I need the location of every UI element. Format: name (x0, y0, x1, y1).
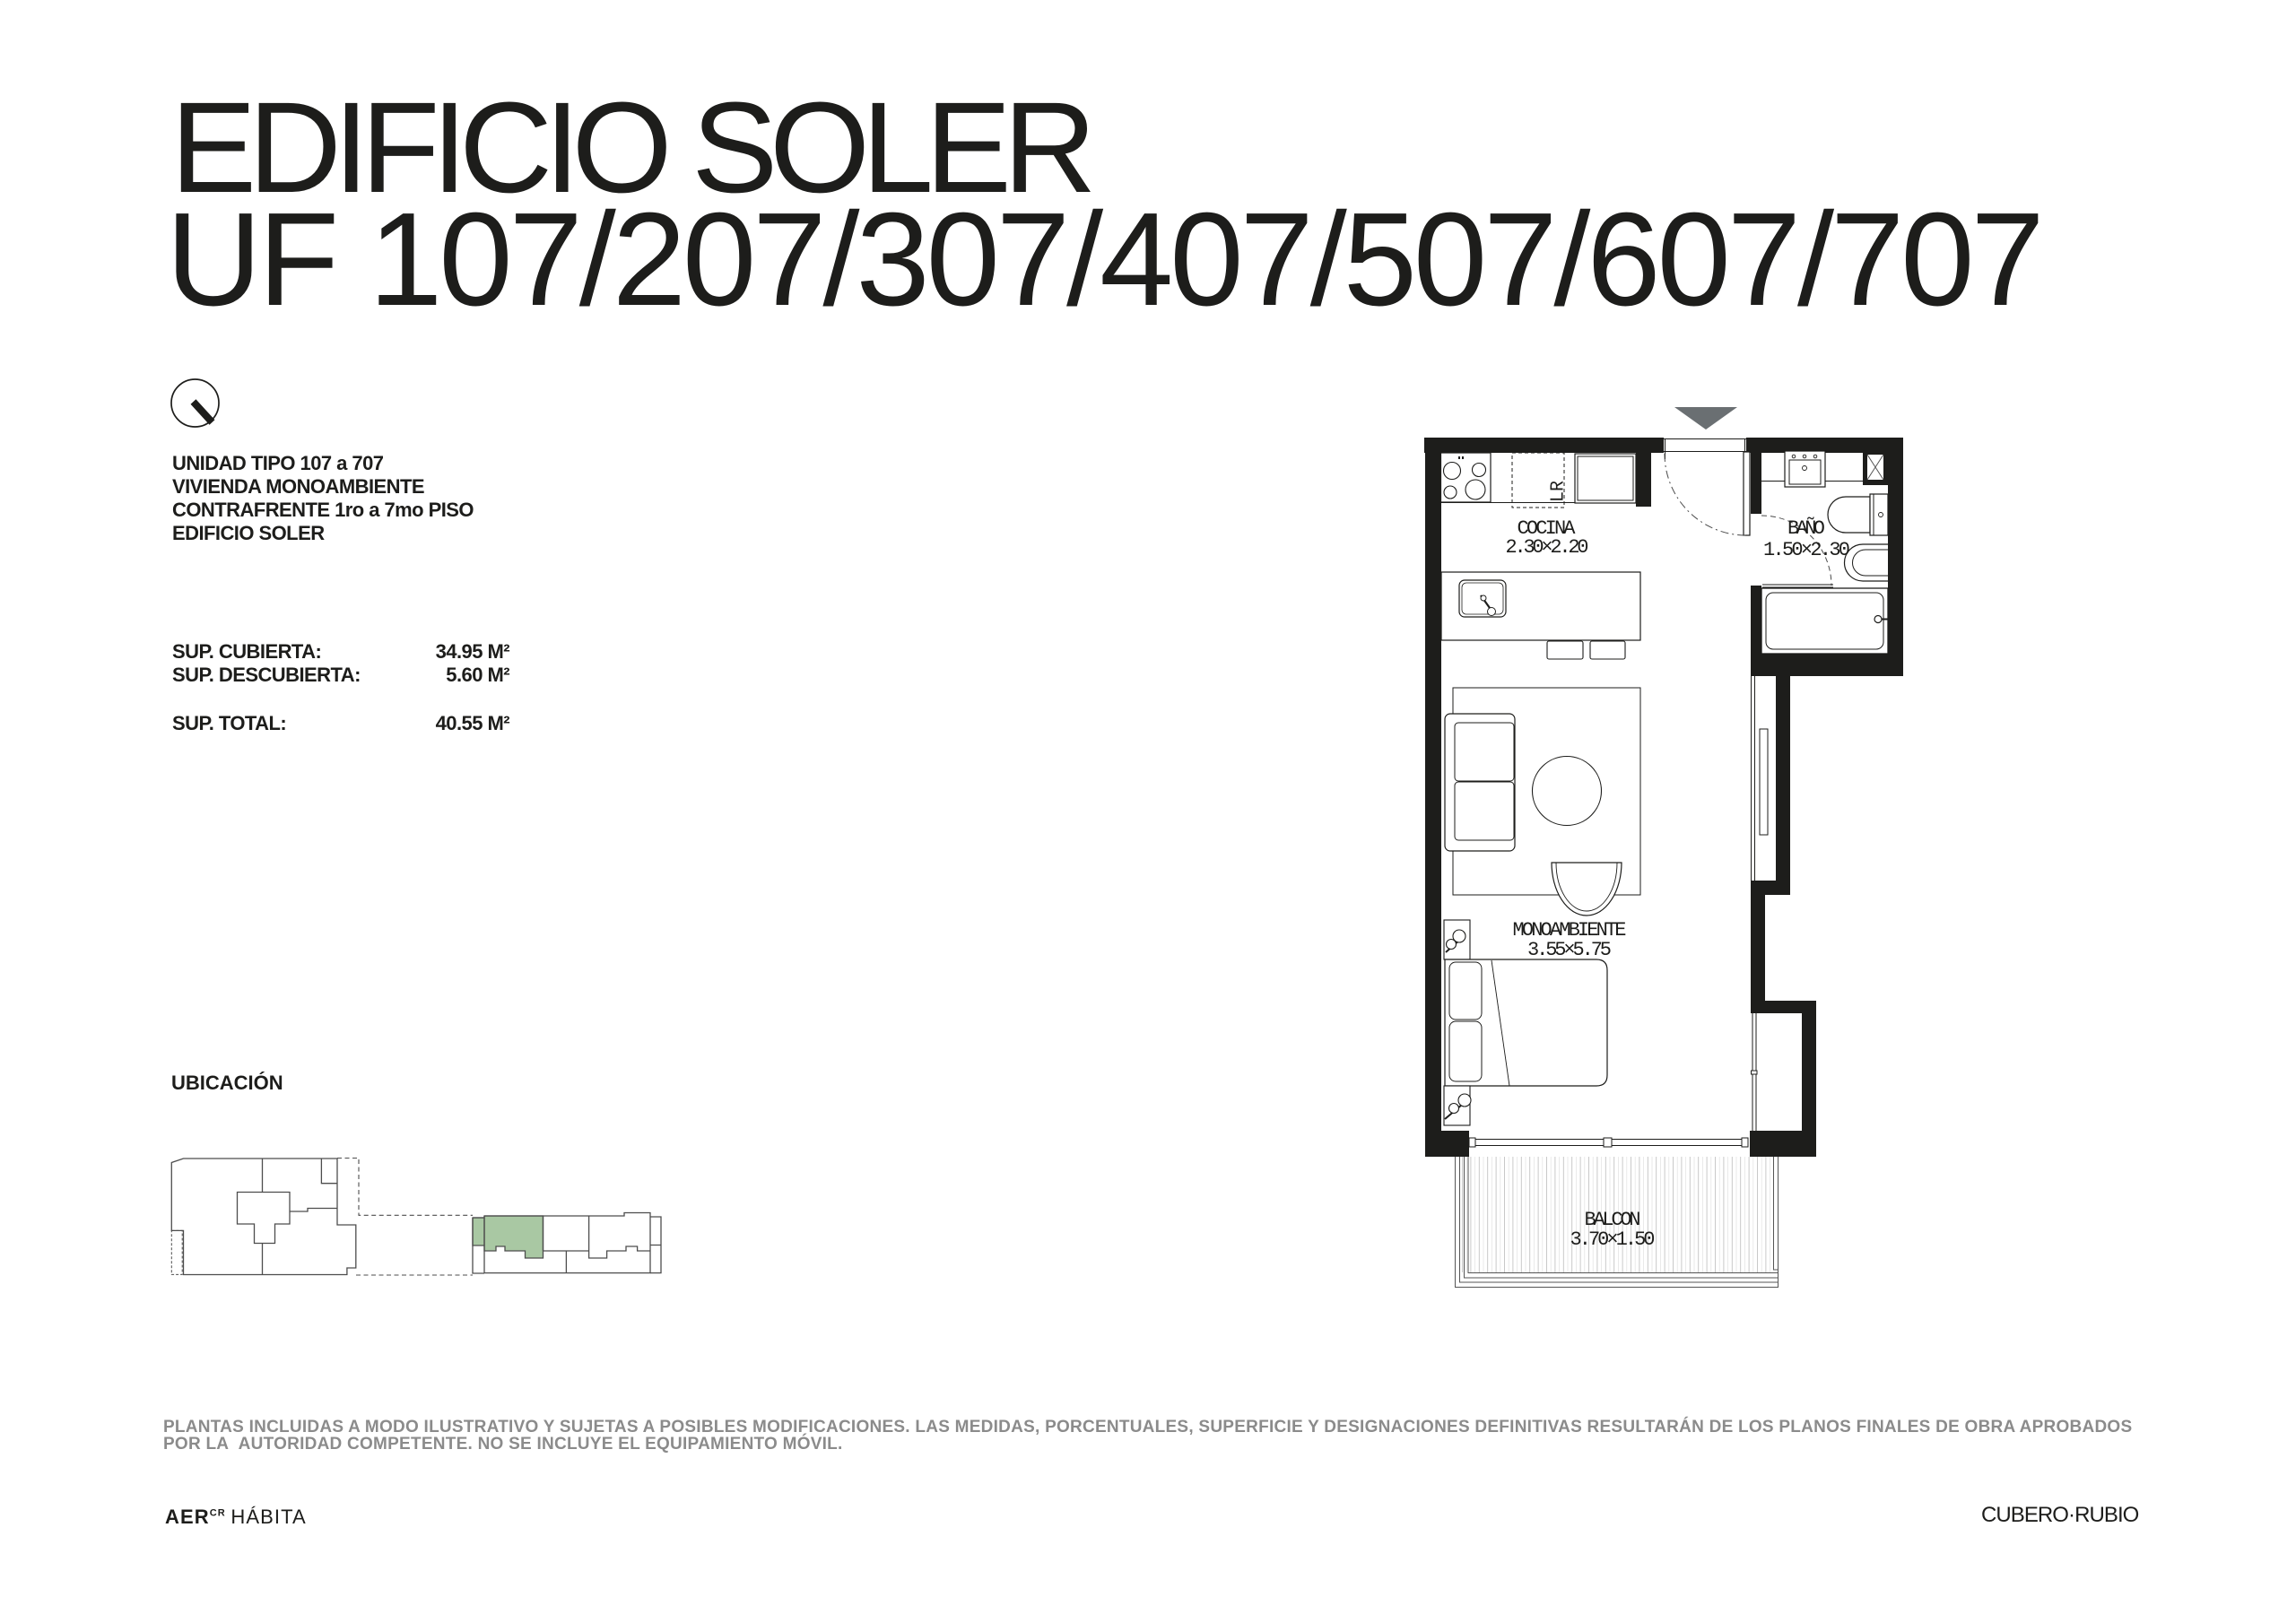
svg-text:3.70×1.50: 3.70×1.50 (1570, 1228, 1656, 1251)
svg-text:1.50×2.30: 1.50×2.30 (1763, 539, 1850, 561)
svg-text:2.30×2.20: 2.30×2.20 (1506, 536, 1589, 559)
svg-text:LR: LR (1549, 481, 1570, 502)
svg-text:BAÑO: BAÑO (1787, 516, 1825, 540)
svg-text:3.55×5.75: 3.55×5.75 (1527, 939, 1612, 961)
